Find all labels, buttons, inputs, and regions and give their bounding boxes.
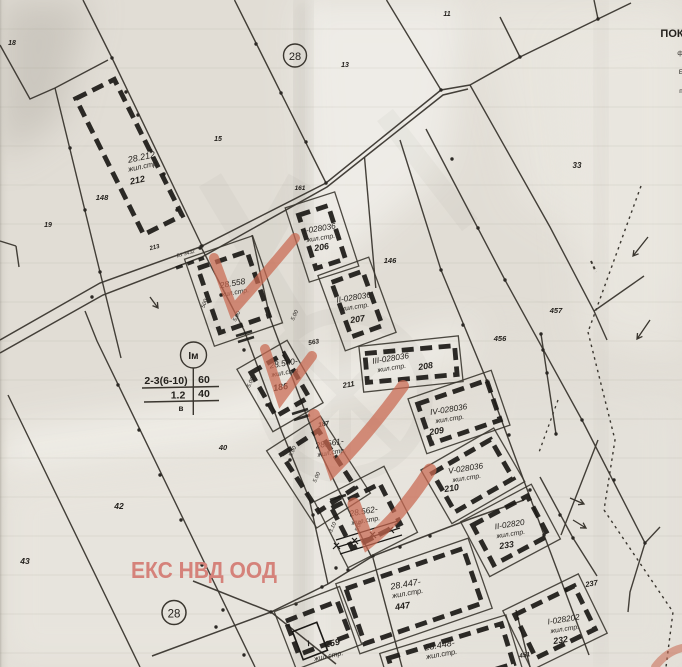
svg-text:161: 161 xyxy=(295,185,306,192)
svg-text:42: 42 xyxy=(113,501,124,511)
svg-text:2-3(6-10): 2-3(6-10) xyxy=(144,375,187,387)
svg-text:60: 60 xyxy=(198,374,210,386)
svg-text:28: 28 xyxy=(289,51,301,63)
svg-text:18: 18 xyxy=(8,40,16,47)
svg-text:11: 11 xyxy=(443,11,450,18)
svg-text:148: 148 xyxy=(96,193,109,202)
svg-text:456: 456 xyxy=(493,334,507,343)
svg-text:43: 43 xyxy=(19,556,30,566)
svg-text:ф: ф xyxy=(677,50,682,57)
svg-text:146: 146 xyxy=(384,256,397,265)
svg-text:28: 28 xyxy=(168,609,181,621)
svg-text:40: 40 xyxy=(218,443,228,452)
svg-text:Iм: Iм xyxy=(188,351,198,362)
svg-text:40: 40 xyxy=(198,388,210,400)
svg-text:13: 13 xyxy=(341,62,349,69)
svg-text:15: 15 xyxy=(214,136,222,143)
svg-text:ЕКС НВД ООД: ЕКС НВД ООД xyxy=(131,557,277,583)
svg-text:в: в xyxy=(179,404,184,413)
svg-text:ПОК: ПОК xyxy=(660,28,682,40)
svg-text:1.2: 1.2 xyxy=(171,390,186,402)
svg-text:19: 19 xyxy=(44,222,52,229)
svg-text:33: 33 xyxy=(573,161,582,170)
svg-text:457: 457 xyxy=(549,306,563,315)
